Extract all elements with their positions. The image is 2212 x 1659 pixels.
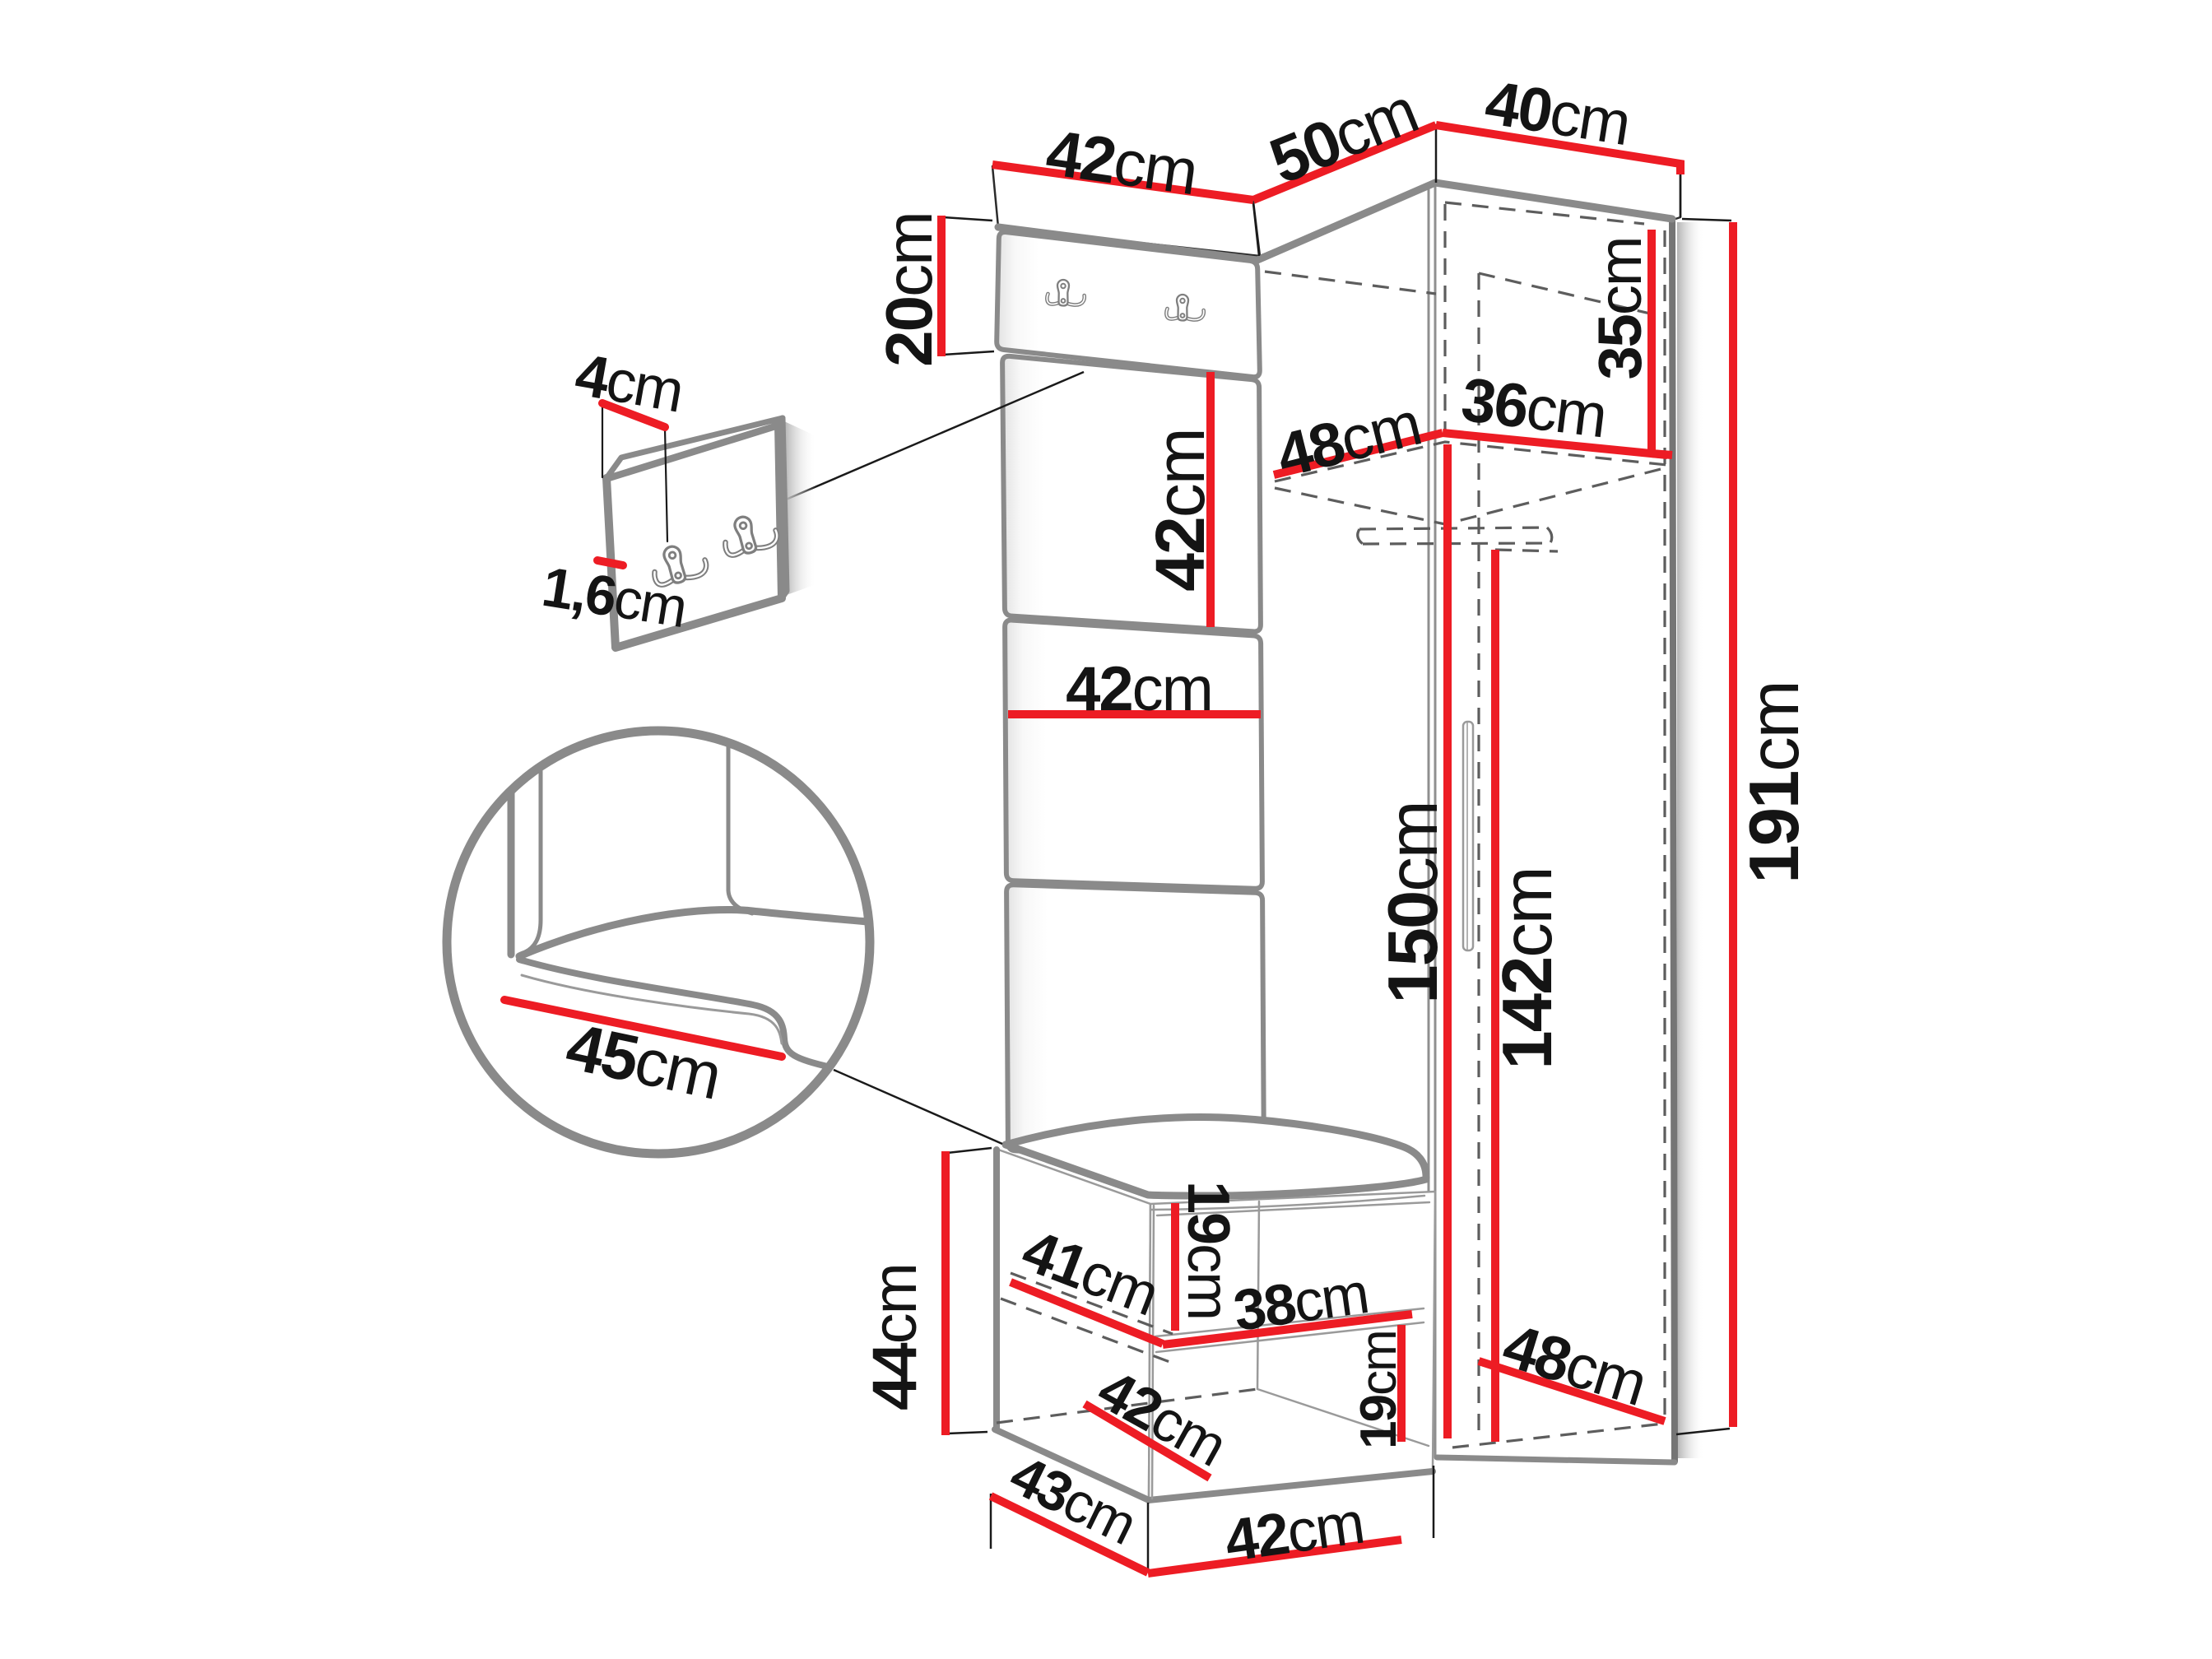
svg-text:142cm: 142cm [1489, 867, 1567, 1069]
svg-text:150cm: 150cm [1374, 802, 1452, 1003]
svg-text:42cm: 42cm [1066, 654, 1212, 724]
svg-text:19cm: 19cm [1350, 1331, 1407, 1449]
svg-text:42cm: 42cm [1141, 429, 1219, 591]
svg-text:191cm: 191cm [1736, 681, 1814, 883]
svg-text:44cm: 44cm [860, 1264, 930, 1410]
svg-text:35cm: 35cm [1586, 238, 1654, 380]
svg-text:19cm: 19cm [1175, 1181, 1241, 1319]
svg-text:20cm: 20cm [872, 212, 946, 367]
